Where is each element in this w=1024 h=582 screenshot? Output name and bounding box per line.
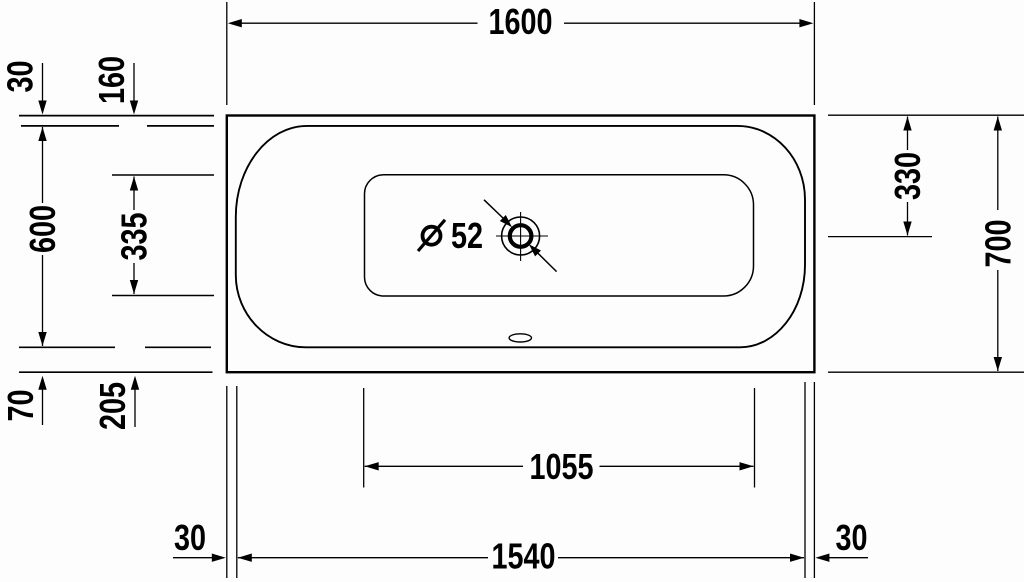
svg-text:600: 600	[22, 205, 63, 253]
svg-text:30: 30	[835, 517, 867, 558]
svg-text:1600: 1600	[488, 1, 552, 42]
svg-text:160: 160	[91, 56, 132, 104]
svg-text:205: 205	[92, 382, 133, 430]
svg-text:335: 335	[113, 212, 154, 260]
svg-text:70: 70	[0, 389, 41, 421]
svg-text:30: 30	[0, 60, 40, 92]
svg-text:30: 30	[174, 517, 206, 558]
svg-text:330: 330	[887, 152, 928, 200]
svg-text:1540: 1540	[491, 535, 555, 576]
svg-text:52: 52	[451, 215, 483, 256]
svg-text:1055: 1055	[529, 446, 593, 487]
svg-text:700: 700	[977, 219, 1018, 267]
